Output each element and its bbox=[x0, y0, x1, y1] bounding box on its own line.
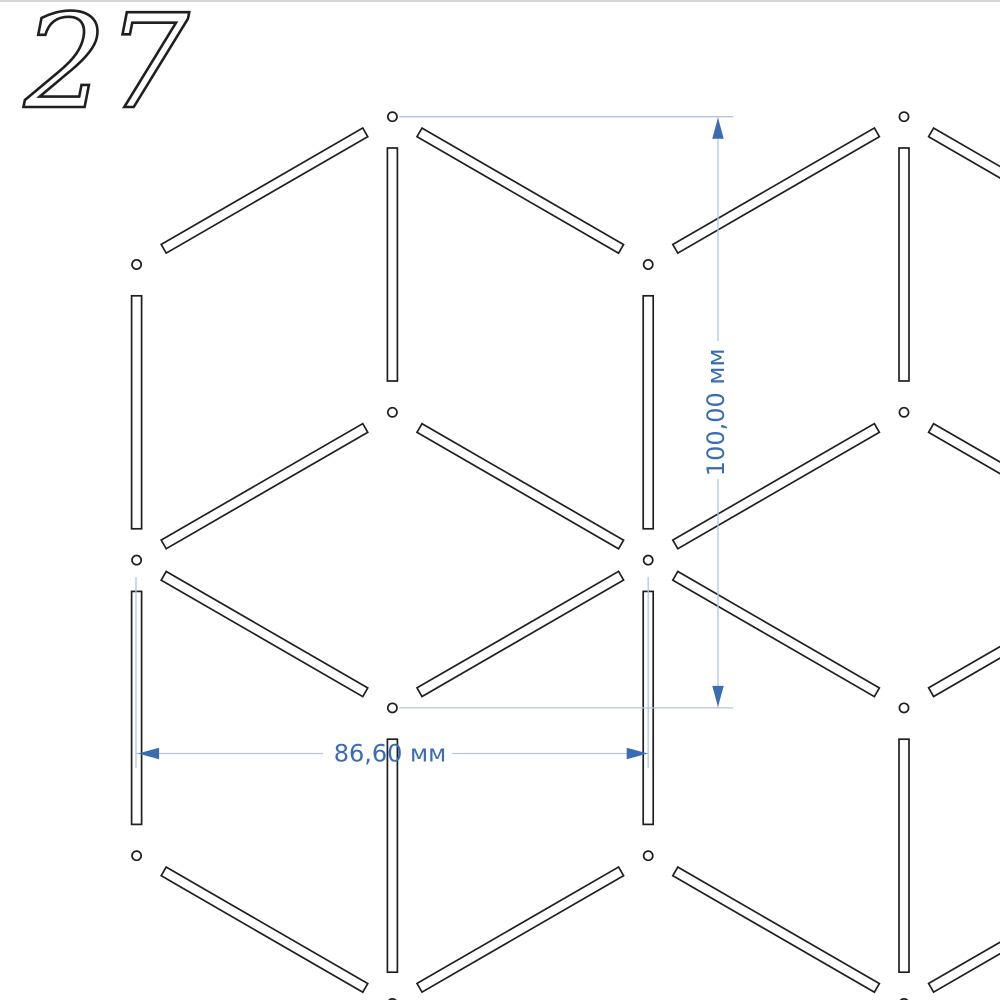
slat-cutout bbox=[161, 424, 368, 549]
slat-cutout bbox=[929, 867, 1000, 992]
slat-cutout bbox=[673, 867, 880, 992]
slat-cutout bbox=[132, 296, 142, 529]
node-hole bbox=[132, 260, 141, 269]
slat-cutout bbox=[417, 867, 624, 992]
slat-cutout bbox=[387, 739, 397, 972]
slat-cutout bbox=[417, 571, 624, 696]
dimension-horizontal-label: 86,60 мм bbox=[334, 740, 447, 768]
node-hole bbox=[899, 408, 908, 417]
pattern-drawing: 86,60 мм 100,00 мм 27 bbox=[0, 0, 1000, 1000]
slat-cutout bbox=[899, 739, 909, 972]
slat-cutout bbox=[417, 424, 624, 549]
node-hole bbox=[388, 408, 397, 417]
node-hole bbox=[899, 112, 908, 121]
cad-canvas: 86,60 мм 100,00 мм 27 bbox=[0, 0, 1000, 1000]
slat-cutout bbox=[161, 867, 368, 992]
cut-pattern-layer bbox=[132, 112, 1000, 1000]
slat-cutout bbox=[161, 128, 368, 253]
dimension-vertical-label: 100,00 мм bbox=[702, 348, 730, 476]
slat-cutout bbox=[929, 128, 1000, 253]
node-hole bbox=[644, 556, 653, 565]
slat-cutout bbox=[417, 128, 624, 253]
node-hole bbox=[132, 556, 141, 565]
node-hole bbox=[899, 703, 908, 712]
node-hole bbox=[388, 703, 397, 712]
slat-cutout bbox=[899, 148, 909, 381]
node-hole bbox=[132, 851, 141, 860]
dimension-arrow-up bbox=[712, 118, 724, 139]
slat-cutout bbox=[673, 571, 880, 696]
slat-cutout bbox=[673, 128, 880, 253]
slat-cutout bbox=[643, 296, 653, 529]
slat-cutout bbox=[161, 571, 368, 696]
node-hole bbox=[644, 851, 653, 860]
sheet-number-label: 27 bbox=[23, 0, 190, 138]
slat-cutout bbox=[387, 148, 397, 381]
dimension-arrow-down bbox=[712, 686, 724, 707]
slat-cutout bbox=[929, 571, 1000, 696]
node-hole bbox=[388, 112, 397, 121]
slat-cutout bbox=[929, 424, 1000, 549]
node-hole bbox=[644, 260, 653, 269]
